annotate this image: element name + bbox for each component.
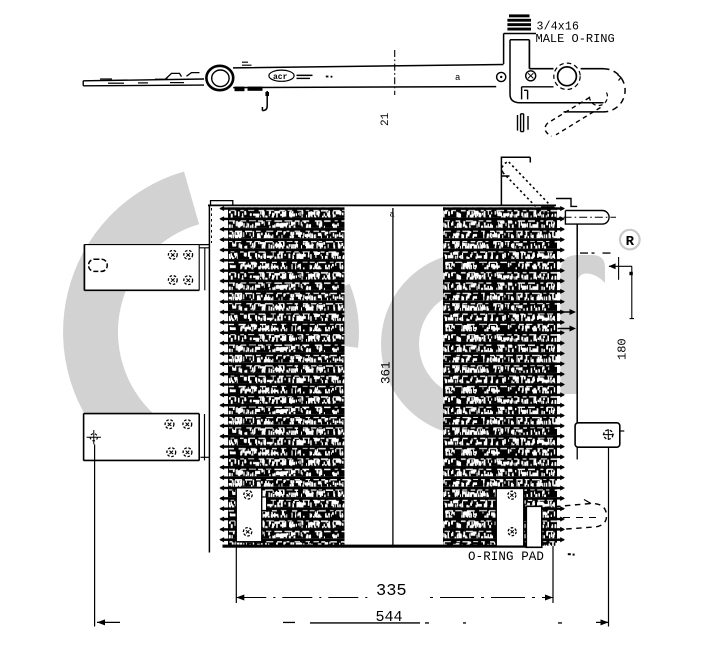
- svg-text:a: a: [455, 73, 461, 83]
- svg-text:acr: acr: [273, 73, 288, 82]
- svg-text:544: 544: [376, 609, 403, 626]
- svg-text:361: 361: [380, 361, 394, 384]
- svg-text:335: 335: [376, 582, 407, 601]
- svg-text:180: 180: [616, 338, 630, 360]
- svg-text:R: R: [626, 234, 635, 250]
- svg-text:21: 21: [380, 112, 392, 126]
- svg-text:a: a: [390, 210, 395, 220]
- svg-text:O-RING PAD: O-RING PAD: [468, 550, 544, 564]
- svg-text:MALE O-RING: MALE O-RING: [536, 32, 615, 46]
